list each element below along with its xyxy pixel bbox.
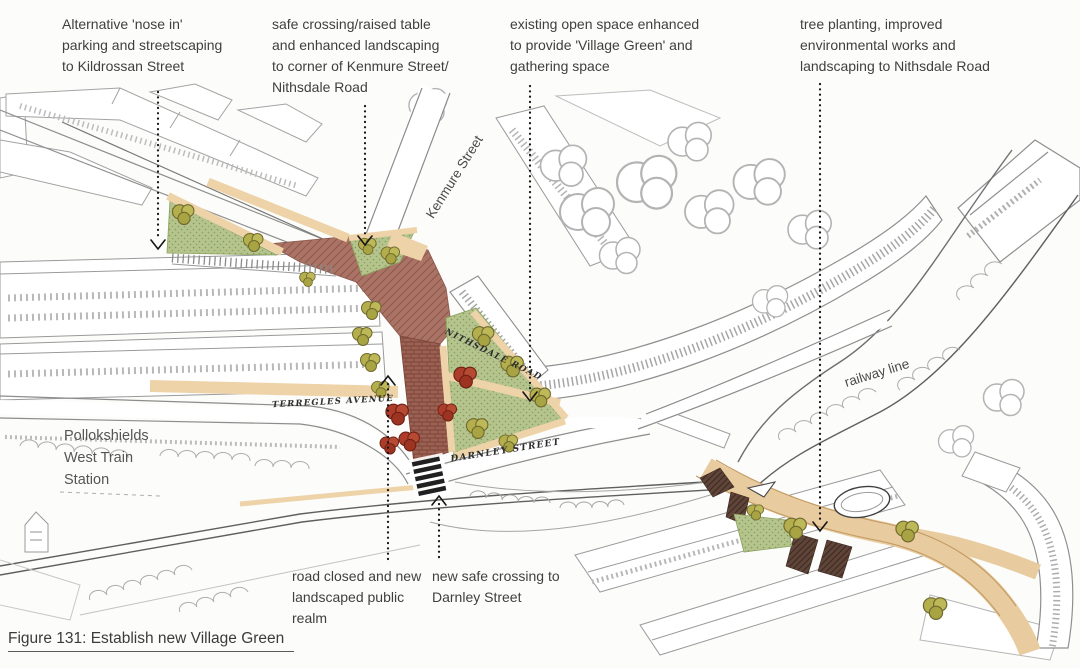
label-station: Pollokshields West Train Station: [64, 425, 149, 491]
buildings-west-rows: [0, 252, 386, 400]
green-southeast-verge: [734, 514, 792, 552]
tree-outline: [984, 380, 1025, 416]
figure-131-canvas: Alternative 'nose in' parking and street…: [0, 0, 1080, 668]
figure-caption: Figure 131: Establish new Village Green: [8, 630, 294, 652]
annotation-tree-planting: tree planting, improved environmental wo…: [800, 14, 990, 77]
buildings-south-terraces: [575, 470, 1060, 660]
buildings-northwest: [0, 84, 322, 205]
zebra-crossing: [407, 453, 451, 502]
annotation-village-green: existing open space enhanced to provide …: [510, 14, 699, 77]
annotation-road-closed: road closed and new landscaped public re…: [292, 566, 421, 629]
station-building: [25, 512, 48, 552]
annotation-nose-in-parking: Alternative 'nose in' parking and street…: [62, 14, 222, 77]
annotation-new-safe-crossing: new safe crossing to Darnley Street: [432, 566, 560, 608]
annotation-safe-crossing-kenmure: safe crossing/raised table and enhanced …: [272, 14, 449, 98]
tree-outline: [939, 426, 974, 457]
